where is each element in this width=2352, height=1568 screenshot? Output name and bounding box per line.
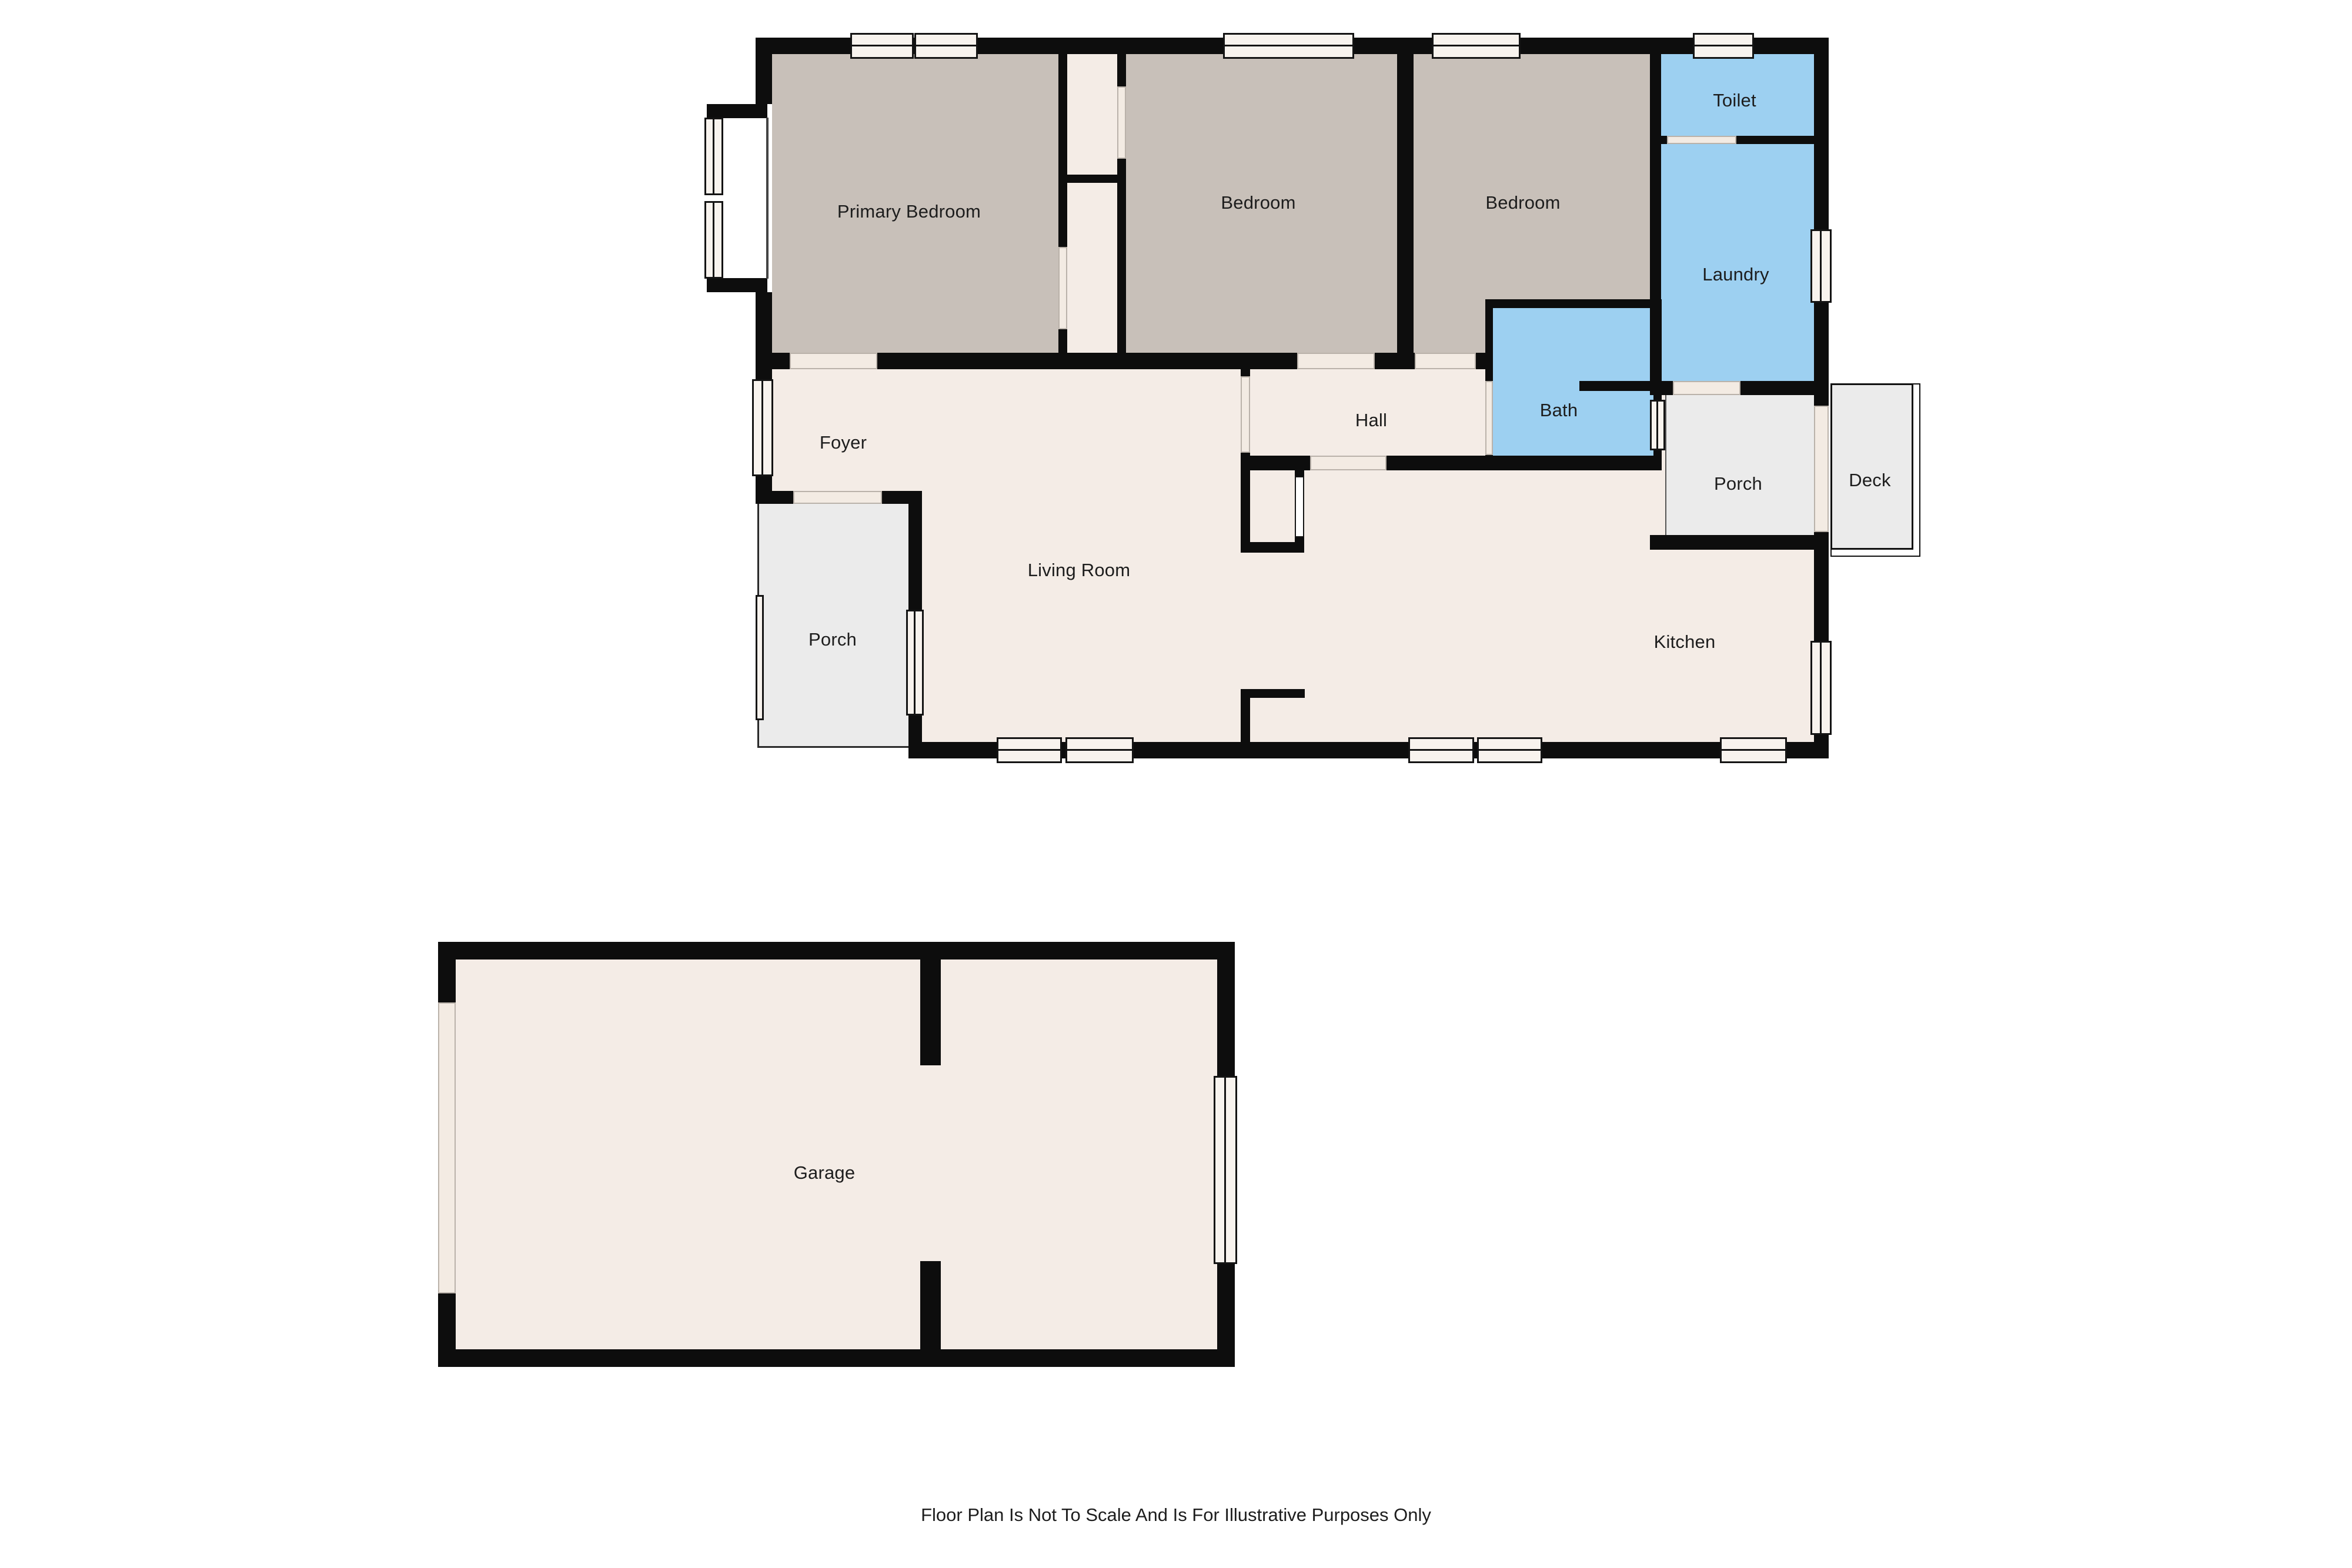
room-label: Porch: [1714, 473, 1762, 494]
door-opening: [1058, 247, 1067, 329]
door-opening: [1117, 86, 1126, 159]
door-leaf: [1295, 476, 1304, 537]
room-fill-bedroom: [1414, 54, 1650, 299]
window: [1477, 737, 1542, 763]
wall: [756, 476, 772, 491]
room-label: Kitchen: [1654, 631, 1716, 653]
porch-area: [1665, 395, 1814, 535]
wall: [438, 1349, 1235, 1367]
door-opening: [1673, 381, 1740, 395]
wall: [1650, 535, 1814, 550]
door-opening: [438, 1002, 456, 1293]
window: [906, 610, 924, 716]
room-label: Toilet: [1713, 90, 1756, 111]
window: [704, 201, 723, 279]
footer-disclaimer: Floor Plan Is Not To Scale And Is For Il…: [921, 1505, 1431, 1526]
window: [1214, 1076, 1237, 1264]
room-fill-bedroom: [1414, 299, 1485, 353]
floor-plan: Floor Plan Is Not To Scale And Is For Il…: [0, 0, 2352, 1568]
wall: [920, 959, 941, 1065]
room-label: Laundry: [1702, 264, 1769, 285]
wall: [1814, 38, 1829, 229]
window: [914, 33, 978, 59]
window: [1650, 400, 1665, 450]
window: [704, 118, 723, 195]
wall: [1241, 698, 1250, 744]
door-opening: [1814, 406, 1829, 532]
room-fill-wet-area: [1661, 144, 1814, 381]
room-fill-living-area: [1067, 183, 1117, 353]
room-label: Bath: [1540, 400, 1578, 421]
wall: [1241, 689, 1305, 698]
window: [1810, 641, 1832, 735]
wall: [707, 278, 767, 292]
room-label: Bedroom: [1485, 192, 1560, 213]
door-opening: [1310, 456, 1387, 470]
door-opening: [1415, 353, 1476, 369]
room-label: Bedroom: [1221, 192, 1295, 213]
wall: [1295, 537, 1304, 544]
deck-area: [1830, 383, 1913, 550]
room-label: Porch: [808, 629, 857, 650]
window: [997, 737, 1062, 763]
room-label: Foyer: [820, 432, 867, 453]
room-fill-living-area: [456, 959, 1217, 1349]
window: [1065, 737, 1134, 763]
wall: [908, 716, 922, 742]
window: [1223, 33, 1354, 59]
window: [1408, 737, 1474, 763]
wall: [1485, 299, 1662, 308]
wall: [707, 104, 767, 118]
room-fill-living-area: [1067, 54, 1117, 175]
window: [1810, 229, 1832, 303]
window: [752, 379, 773, 476]
wall: [908, 504, 922, 610]
door-opening: [1241, 376, 1250, 453]
wall: [1058, 175, 1126, 183]
room-label: Hall: [1355, 410, 1387, 431]
window: [850, 33, 914, 59]
wall: [1814, 303, 1829, 406]
window: [1720, 737, 1787, 763]
door-opening: [1297, 353, 1375, 369]
wall: [1579, 381, 1653, 391]
wall: [920, 1261, 941, 1349]
wall: [756, 292, 772, 379]
door-opening: [790, 353, 877, 369]
bay-inner-line: [766, 118, 769, 279]
wall: [1397, 54, 1414, 369]
wall: [438, 942, 1235, 959]
door-opening: [1485, 381, 1493, 455]
window: [1693, 33, 1754, 59]
porch-area: [757, 504, 908, 748]
room-label: Garage: [794, 1162, 856, 1183]
wall: [1814, 532, 1829, 641]
bay-window-recess: [722, 118, 767, 279]
room-fill-living-area: [772, 369, 922, 491]
wall: [1295, 467, 1304, 476]
door-opening: [1667, 136, 1736, 144]
room-label: Living Room: [1028, 560, 1131, 581]
window: [1432, 33, 1521, 59]
room-label: Deck: [1849, 470, 1890, 491]
porch-screen-window: [756, 595, 764, 720]
wall: [772, 353, 1485, 369]
wall: [756, 54, 772, 104]
room-label: Primary Bedroom: [837, 201, 981, 222]
door-opening: [793, 491, 882, 504]
wall: [1241, 470, 1250, 553]
